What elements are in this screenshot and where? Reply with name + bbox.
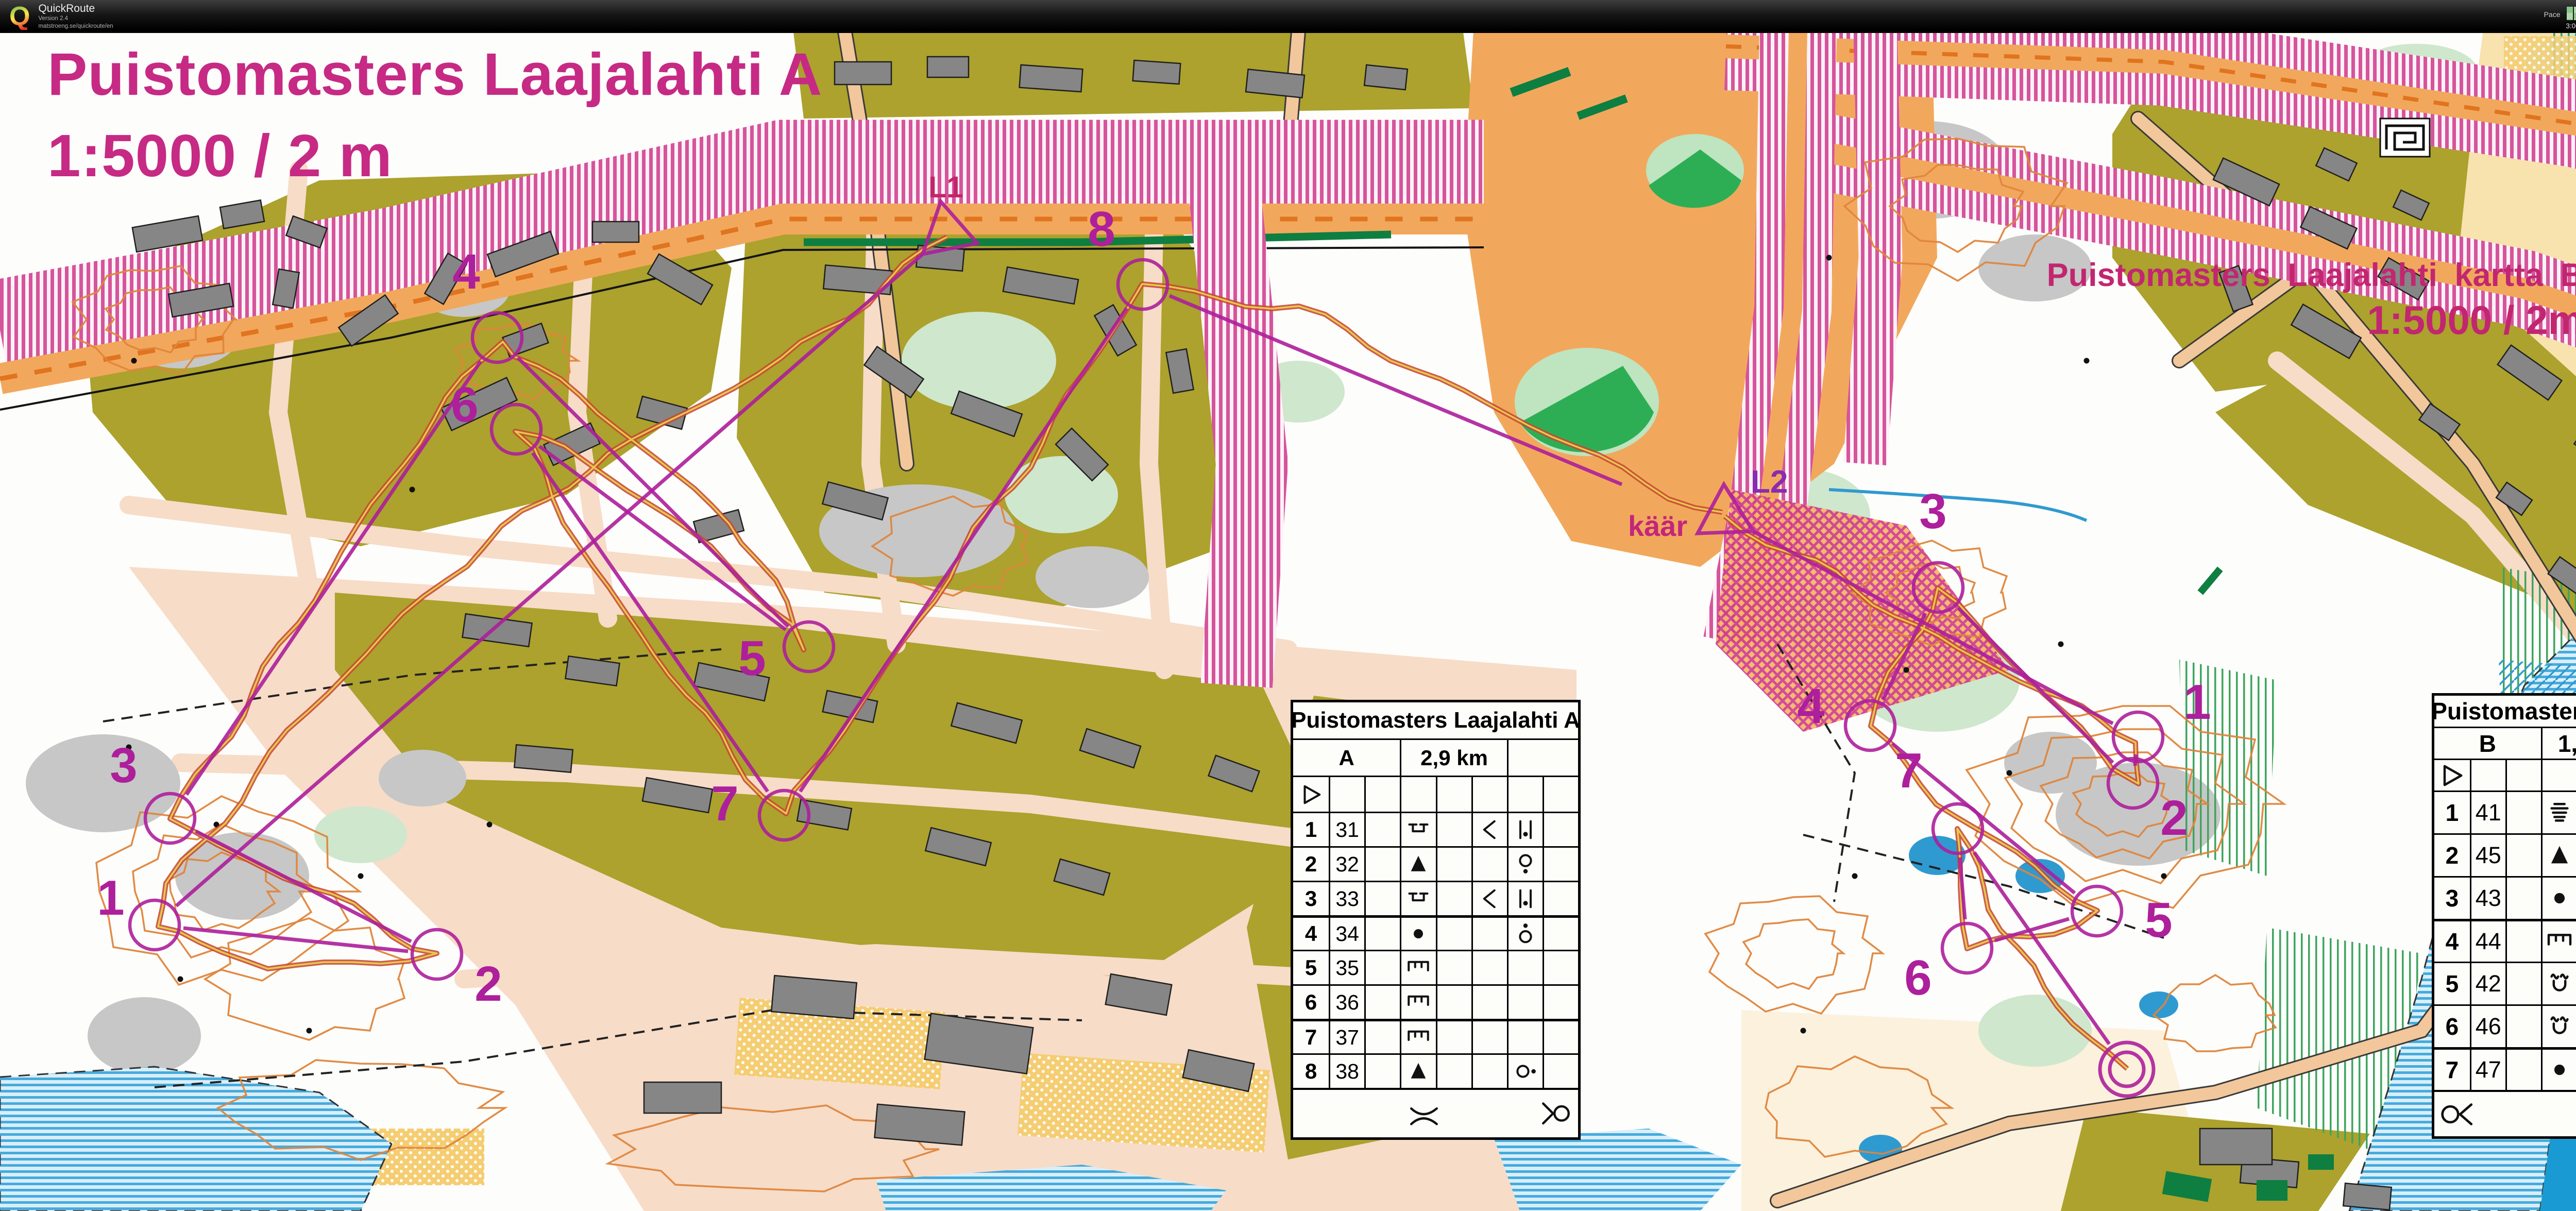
col-c [1364, 918, 1400, 950]
map-a-title-scale: 1:5000 / 2 m [47, 115, 822, 197]
control-code: 32 [1329, 848, 1364, 881]
col-g [1507, 813, 1543, 846]
control-row: 5 35 [1293, 950, 1578, 984]
between-arcs-icon [1407, 1099, 1441, 1128]
footer-left [2441, 1099, 2477, 1130]
control-row: 1 41 [2434, 790, 2576, 833]
finish-row [1293, 1088, 1578, 1137]
u-shape-icon [1405, 886, 1431, 912]
control-number: 3 [2434, 878, 2470, 919]
col-h [1543, 1021, 1578, 1053]
control-code: 37 [1329, 1021, 1364, 1053]
finish-x-circle-icon [1539, 1099, 1573, 1128]
col-g [1507, 848, 1543, 881]
control-code: 42 [2470, 963, 2505, 1004]
map-b-title-scale: 1:5000 / 2m [1981, 297, 2576, 344]
empty-cell [2505, 760, 2541, 790]
dot-icon [2545, 1055, 2574, 1084]
col-d [2541, 835, 2576, 876]
control-row: 4 44 [2434, 919, 2576, 962]
start-symbol-cell [1293, 777, 1329, 812]
course-extra [1507, 740, 1578, 776]
bars-dot-icon [1513, 817, 1538, 843]
control-number-label: 5 [2145, 893, 2172, 948]
circle-angle-icon [2441, 1099, 2477, 1130]
app-info: QuickRoute Version 2.4 matstroeng.se/qui… [38, 3, 113, 30]
triangle-icon [2545, 841, 2574, 870]
stairs-icon [2545, 798, 2574, 827]
control-code: 44 [2470, 921, 2505, 962]
col-e [1436, 813, 1471, 846]
col-c [2505, 878, 2541, 919]
control-number: 6 [2434, 1006, 2470, 1047]
col-d [1400, 813, 1435, 846]
control-code: 38 [1329, 1055, 1364, 1088]
control-number-label: 7 [1895, 743, 1922, 798]
col-d [1400, 848, 1435, 881]
col-c [2505, 1006, 2541, 1047]
col-d [2541, 1006, 2576, 1047]
map-text-label-kaar: käär [1628, 509, 1687, 543]
control-number: 7 [1293, 1021, 1329, 1053]
col-d [2541, 792, 2576, 833]
col-c [2505, 921, 2541, 962]
stump-icon [2545, 969, 2574, 998]
control-row: 2 45 [2434, 833, 2576, 876]
col-d [1400, 1055, 1435, 1088]
control-row: 7 47 [2434, 1047, 2576, 1090]
start-tri-icon [2437, 761, 2466, 790]
control-number: 2 [1293, 848, 1329, 881]
angle-left-icon [1477, 886, 1503, 912]
control-row: 6 46 [2434, 1004, 2576, 1047]
app-header: Q QuickRoute Version 2.4 matstroeng.se/q… [0, 0, 2576, 33]
empty-cell [1400, 777, 1435, 812]
empty-cell [1364, 777, 1400, 812]
control-number-label: 5 [738, 631, 766, 686]
course-length: 1,4 km [2541, 728, 2576, 759]
col-g [1507, 986, 1543, 1019]
pace-tick-label: 3:00 [2566, 22, 2576, 30]
col-g [1507, 951, 1543, 984]
control-number-label: 6 [1904, 950, 1931, 1005]
control-code: 47 [2470, 1050, 2505, 1090]
control-number: 5 [2434, 963, 2470, 1004]
control-number: 7 [2434, 1050, 2470, 1090]
control-number-label: 6 [451, 377, 478, 432]
col-g [1507, 1021, 1543, 1053]
col-h [1543, 951, 1578, 984]
control-code: 34 [1329, 918, 1364, 950]
app-url[interactable]: matstroeng.se/quickroute/en [38, 23, 113, 30]
col-h [1543, 813, 1578, 846]
quickroute-logo-icon: Q [9, 3, 30, 30]
map-b-title: Puistomasters Laajalahti kartta B 1:5000… [1981, 257, 2576, 344]
start-symbol-cell [2434, 760, 2470, 790]
control-code: 43 [2470, 878, 2505, 919]
footer-right [1539, 1099, 1573, 1128]
dot-icon [1405, 921, 1431, 947]
circle-dot-below-icon [1513, 851, 1538, 877]
col-e [1436, 1021, 1471, 1053]
control-number-label: 3 [1919, 484, 1946, 539]
col-g [1507, 918, 1543, 950]
col-f [1471, 882, 1507, 915]
control-number: 1 [1293, 813, 1329, 846]
control-code: 35 [1329, 951, 1364, 984]
control-number: 6 [1293, 986, 1329, 1019]
circle-dot-right-icon [1513, 1058, 1538, 1084]
control-row: 8 38 [1293, 1053, 1578, 1088]
col-g [1507, 882, 1543, 915]
col-c [1364, 951, 1400, 984]
map-exchange-label-l1: L1 [928, 170, 963, 205]
col-e [1436, 918, 1471, 950]
col-d [2541, 878, 2576, 919]
col-d [1400, 882, 1435, 915]
control-descriptions-course-a: Puistomasters Laajalahti A A 2,9 km 1 31… [1291, 700, 1581, 1140]
control-number: 4 [1293, 918, 1329, 950]
control-row: 5 42 [2434, 962, 2576, 1004]
footer-center-symbol [1299, 1099, 1441, 1128]
control-number: 4 [2434, 921, 2470, 962]
triangle-icon [1405, 851, 1431, 877]
col-c [2505, 835, 2541, 876]
col-g [1507, 1055, 1543, 1088]
control-row: 1 31 [1293, 812, 1578, 846]
col-c [1364, 1021, 1400, 1053]
start-tri-icon [1298, 782, 1324, 808]
pace-legend: Pace 3:004:005:006:007:008:00 min/km [2544, 2, 2576, 32]
col-f [1471, 986, 1507, 1019]
col-c [1364, 1055, 1400, 1088]
sheet-title: Puistomasters Laajalahti A [1293, 702, 1578, 738]
course-letter: B [2434, 728, 2541, 759]
control-number-label: 8 [1088, 201, 1115, 257]
control-number-label: 7 [711, 776, 738, 831]
control-code: 41 [2470, 792, 2505, 833]
circle-dot-above-icon [1513, 921, 1538, 947]
control-row: 4 34 [1293, 915, 1578, 950]
empty-cell [1507, 777, 1543, 812]
col-c [1364, 882, 1400, 915]
col-h [1543, 1055, 1578, 1088]
control-row: 2 32 [1293, 846, 1578, 881]
control-number: 1 [2434, 792, 2470, 833]
empty-cell [1543, 777, 1578, 812]
control-code: 45 [2470, 835, 2505, 876]
control-number: 2 [2434, 835, 2470, 876]
bars-dot-icon [1513, 886, 1538, 912]
col-d [1400, 918, 1435, 950]
control-descriptions-course-b: Puistomaster Laajalahti B B 1,4 km 1 41 … [2432, 693, 2576, 1139]
col-f [1471, 813, 1507, 846]
col-h [1543, 918, 1578, 950]
control-number-label: 2 [2160, 790, 2188, 846]
col-d [2541, 921, 2576, 962]
col-h [1543, 848, 1578, 881]
dot-icon [2545, 884, 2574, 913]
col-f [1471, 1021, 1507, 1053]
stump-icon [2545, 1012, 2574, 1041]
empty-cell [2541, 760, 2576, 790]
control-number-label: 3 [110, 738, 137, 793]
col-e [1436, 848, 1471, 881]
control-row: 3 43 [2434, 876, 2576, 919]
empty-cell [1436, 777, 1471, 812]
control-number: 8 [1293, 1055, 1329, 1088]
col-d [2541, 1050, 2576, 1090]
pace-legend-label: Pace [2544, 10, 2561, 32]
map-a-title: Puistomasters Laajalahti A 1:5000 / 2 m [47, 34, 822, 197]
control-row: 3 33 [1293, 881, 1578, 915]
col-c [2505, 792, 2541, 833]
control-number-label: 1 [2183, 675, 2211, 730]
control-code: 46 [2470, 1006, 2505, 1047]
col-e [1436, 1055, 1471, 1088]
app-version: Version 2.4 [38, 15, 113, 23]
col-d [1400, 951, 1435, 984]
col-c [2505, 963, 2541, 1004]
empty-cell [2470, 760, 2505, 790]
pace-gradient-bar [2567, 7, 2576, 20]
fence-icon [2545, 927, 2574, 956]
col-d [1400, 1021, 1435, 1053]
col-f [1471, 1055, 1507, 1088]
control-row: 6 36 [1293, 984, 1578, 1019]
fence-icon [1405, 955, 1431, 981]
control-row: 7 37 [1293, 1019, 1578, 1053]
app-title: QuickRoute [38, 3, 113, 15]
control-number-label: 1 [97, 870, 124, 926]
control-number-label: 2 [474, 956, 502, 1012]
col-f [1471, 918, 1507, 950]
control-code: 36 [1329, 986, 1364, 1019]
col-c [1364, 813, 1400, 846]
map-b-title-line1: Puistomasters Laajalahti kartta B [1981, 257, 2576, 294]
quickroute-window: 12345678 1234567 Q QuickRoute Version 2.… [0, 0, 2576, 1211]
col-f [1471, 848, 1507, 881]
control-number-label: 4 [452, 244, 480, 299]
col-h [1543, 882, 1578, 915]
sheet-title: Puistomaster Laajalahti B [2434, 696, 2576, 727]
control-number-label: 4 [1797, 679, 1824, 734]
fence-icon [1405, 989, 1431, 1015]
finish-row: 220 m [2434, 1090, 2576, 1136]
control-number: 3 [1293, 882, 1329, 915]
col-e [1436, 951, 1471, 984]
col-f [1471, 951, 1507, 984]
control-number: 5 [1293, 951, 1329, 984]
col-e [1436, 986, 1471, 1019]
col-d [1400, 986, 1435, 1019]
angle-left-icon [1477, 817, 1503, 843]
u-shape-icon [1405, 817, 1431, 843]
map-exchange-label-l2: L2 [1751, 464, 1788, 500]
control-code: 33 [1329, 882, 1364, 915]
map-a-title-line1: Puistomasters Laajalahti A [47, 34, 822, 115]
empty-cell [1329, 777, 1364, 812]
triangle-icon [1405, 1058, 1431, 1084]
col-d [2541, 963, 2576, 1004]
fence-icon [1405, 1024, 1431, 1050]
pace-color-scale: 3:004:005:006:007:008:00 [2567, 2, 2576, 32]
course-letter: A [1293, 740, 1400, 776]
empty-cell [1471, 777, 1507, 812]
col-h [1543, 986, 1578, 1019]
course-length: 2,9 km [1400, 740, 1506, 776]
col-e [1436, 882, 1471, 915]
pace-tick [2573, 7, 2574, 20]
col-c [2505, 1050, 2541, 1090]
col-c [1364, 848, 1400, 881]
control-code: 31 [1329, 813, 1364, 846]
col-c [1364, 986, 1400, 1019]
